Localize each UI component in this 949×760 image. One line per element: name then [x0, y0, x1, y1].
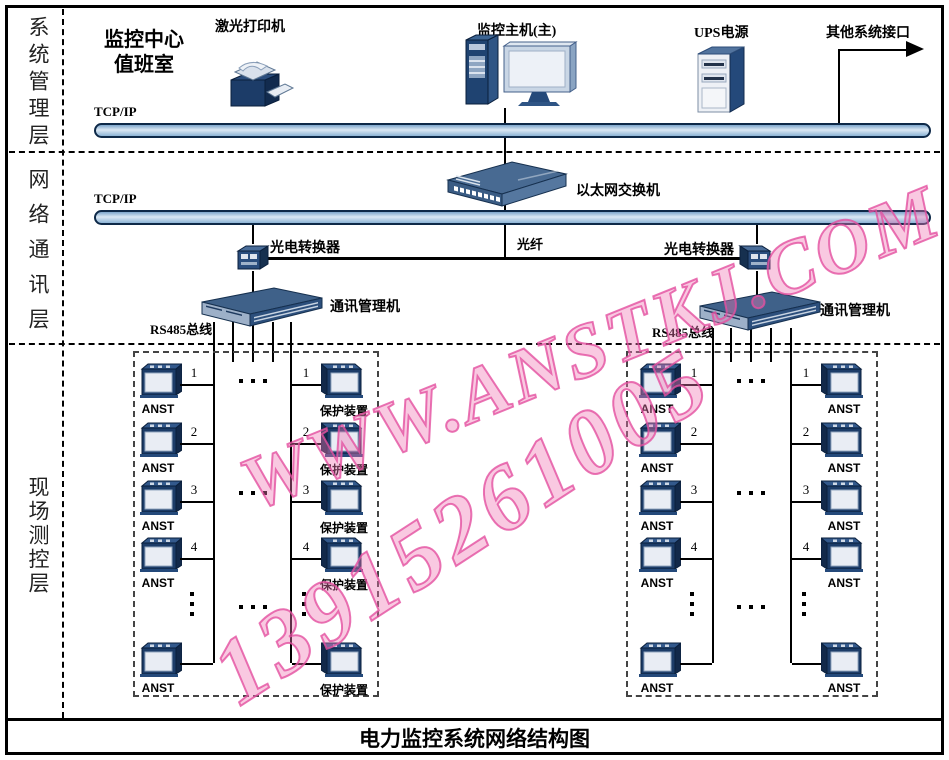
row-number: 2 — [184, 424, 204, 440]
layer-separator-2 — [9, 343, 940, 345]
arrow-right-icon — [906, 41, 924, 57]
field-device-icon — [635, 478, 681, 520]
row-number: 3 — [184, 482, 204, 498]
optical-converter-right-label: 光电转换器 — [664, 239, 734, 259]
field-device-icon — [821, 420, 867, 462]
device-connector — [292, 558, 321, 560]
device-label: ANST — [130, 681, 186, 695]
field-device-icon — [321, 420, 367, 462]
row-number: 1 — [684, 365, 704, 381]
host-computer-icon — [452, 30, 582, 112]
ethernet-switch-icon — [440, 158, 572, 212]
device-label: ANST — [816, 576, 872, 590]
field-device-icon — [136, 478, 182, 520]
device-label: 保护装置 — [316, 519, 372, 536]
optical-converter-right-icon — [736, 241, 776, 273]
device-connector — [680, 558, 712, 560]
field-device-icon — [136, 535, 182, 577]
field-device-icon — [821, 478, 867, 520]
device-label: ANST — [130, 576, 186, 590]
ellipsis-horizontal-icon — [235, 598, 271, 616]
tcpip-label-1: TCP/IP — [94, 104, 137, 120]
rs485-left-label: RS485总线 — [150, 319, 212, 338]
layer-label-system: 系统管理层 — [23, 16, 53, 151]
ups-icon — [688, 38, 752, 118]
ellipsis-vertical-icon — [302, 586, 306, 622]
wire-other-interface-horizontal — [838, 49, 910, 51]
sidebar-divider — [62, 9, 64, 718]
device-connector — [180, 558, 213, 560]
wire-other-interface-vertical — [838, 50, 840, 124]
device-label: ANST — [629, 519, 685, 533]
device-label: ANST — [816, 402, 872, 416]
row-number: 4 — [296, 539, 316, 555]
row-number: 2 — [796, 424, 816, 440]
comm-manager-left-label: 通讯管理机 — [330, 296, 400, 316]
device-label: ANST — [130, 402, 186, 416]
device-label: 保护装置 — [316, 461, 372, 478]
tcpip-label-2: TCP/IP — [94, 191, 137, 207]
diagram-title: 电力监控系统网络结构图 — [359, 723, 590, 753]
device-label: ANST — [816, 519, 872, 533]
device-connector — [680, 443, 712, 445]
device-connector — [792, 558, 821, 560]
ellipsis-vertical-icon — [802, 586, 806, 622]
tcpip-bus-1 — [94, 123, 931, 138]
device-connector — [292, 501, 321, 503]
row-number: 4 — [184, 539, 204, 555]
device-connector — [792, 501, 821, 503]
field-device-icon — [635, 640, 681, 682]
other-interface-label: 其他系统接口 — [826, 22, 910, 42]
layer-label-field: 现场测控层 — [23, 476, 53, 596]
device-label: ANST — [629, 402, 685, 416]
field-device-icon — [136, 640, 182, 682]
title-bar: 电力监控系统网络结构图 — [8, 718, 941, 755]
comm-manager-left-icon — [196, 284, 328, 334]
row-number: 4 — [684, 539, 704, 555]
row-number: 3 — [796, 482, 816, 498]
device-connector — [180, 663, 213, 665]
layer-separator-1 — [9, 151, 940, 153]
ellipsis-vertical-icon — [690, 586, 694, 622]
ellipsis-horizontal-icon — [235, 372, 271, 390]
row-number: 2 — [296, 424, 316, 440]
tcpip-bus-2 — [94, 210, 931, 225]
device-label: 保护装置 — [316, 681, 372, 698]
rs485-right-label: RS485总线 — [652, 322, 714, 341]
device-label: ANST — [130, 519, 186, 533]
field-device-icon — [635, 361, 681, 403]
device-connector — [180, 501, 213, 503]
device-label: 保护装置 — [316, 402, 372, 419]
field-device-icon — [635, 535, 681, 577]
field-device-icon — [321, 361, 367, 403]
field-device-icon — [136, 420, 182, 462]
device-connector — [292, 384, 321, 386]
field-device-icon — [321, 535, 367, 577]
row-number: 4 — [796, 539, 816, 555]
optical-converter-left-icon — [232, 241, 272, 273]
device-connector — [680, 501, 712, 503]
device-connector — [292, 443, 321, 445]
device-connector — [680, 384, 712, 386]
room-title-line1: 监控中心 — [94, 28, 194, 53]
ethernet-switch-label: 以太网交换机 — [576, 180, 660, 200]
row-number: 2 — [684, 424, 704, 440]
layer-label-network: 网络通讯层 — [23, 168, 53, 343]
printer-label: 激光打印机 — [215, 16, 285, 36]
row-number: 1 — [184, 365, 204, 381]
field-device-icon — [821, 640, 867, 682]
ellipsis-vertical-icon — [190, 586, 194, 622]
field-device-icon — [321, 640, 367, 682]
row-number: 3 — [684, 482, 704, 498]
field-device-icon — [321, 478, 367, 520]
network-structure-diagram: 系统管理层 网络通讯层 现场测控层 监控中心 值班室 激光打印机 监控主机(主)… — [0, 0, 949, 760]
field-device-icon — [635, 420, 681, 462]
ellipsis-horizontal-icon — [235, 484, 271, 502]
field-device-icon — [821, 535, 867, 577]
ellipsis-horizontal-icon — [733, 372, 769, 390]
row-number: 1 — [296, 365, 316, 381]
device-connector — [292, 663, 321, 665]
row-number: 3 — [296, 482, 316, 498]
device-label: 保护装置 — [316, 576, 372, 593]
device-connector — [180, 443, 213, 445]
device-connector — [792, 384, 821, 386]
device-label: ANST — [629, 576, 685, 590]
ellipsis-horizontal-icon — [733, 484, 769, 502]
field-device-icon — [821, 361, 867, 403]
device-connector — [792, 443, 821, 445]
field-device-icon — [136, 361, 182, 403]
device-label: ANST — [629, 461, 685, 475]
device-label: ANST — [130, 461, 186, 475]
printer-icon — [215, 50, 299, 114]
device-label: ANST — [816, 461, 872, 475]
device-connector — [180, 384, 213, 386]
room-title: 监控中心 值班室 — [94, 28, 194, 78]
room-title-line2: 值班室 — [94, 53, 194, 78]
optical-converter-left-label: 光电转换器 — [270, 237, 340, 257]
device-label: ANST — [816, 681, 872, 695]
ellipsis-horizontal-icon — [733, 598, 769, 616]
device-connector — [792, 663, 821, 665]
comm-manager-right-label: 通讯管理机 — [820, 300, 890, 320]
device-label: ANST — [629, 681, 685, 695]
device-connector — [680, 663, 712, 665]
fiber-label: 光纤 — [517, 234, 543, 253]
row-number: 1 — [796, 365, 816, 381]
